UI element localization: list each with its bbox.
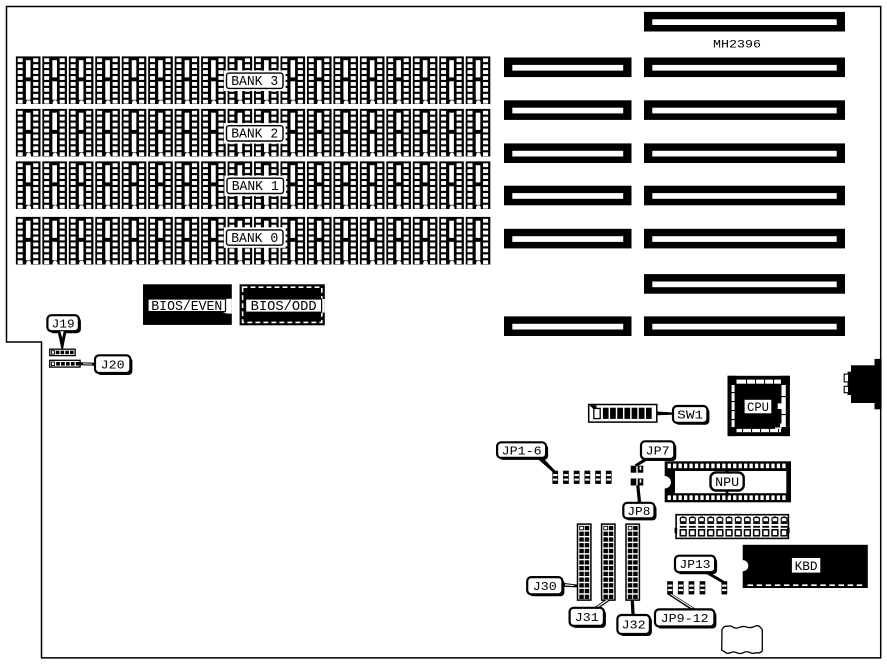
svg-text:KBD: KBD <box>795 560 818 574</box>
svg-text:SW1: SW1 <box>677 409 703 423</box>
svg-text:JP9-12: JP9-12 <box>661 612 709 626</box>
svg-text:JP8: JP8 <box>627 505 650 519</box>
svg-text:BANK 3: BANK 3 <box>231 75 278 90</box>
svg-text:BIOS/EVEN: BIOS/EVEN <box>151 300 222 315</box>
svg-text:BANK 1: BANK 1 <box>232 180 279 195</box>
svg-text:J30: J30 <box>533 580 557 594</box>
svg-text:J19: J19 <box>52 317 75 331</box>
svg-text:J32: J32 <box>622 619 646 633</box>
svg-text:BANK 0: BANK 0 <box>231 232 278 247</box>
svg-text:NPU: NPU <box>715 476 739 490</box>
svg-text:BANK 2: BANK 2 <box>231 128 278 143</box>
svg-text:JP1-6: JP1-6 <box>502 444 542 458</box>
svg-text:CPU: CPU <box>747 401 769 415</box>
svg-text:MH2396: MH2396 <box>713 40 761 52</box>
svg-text:BIOS/ODD: BIOS/ODD <box>251 300 317 315</box>
svg-text:JP7: JP7 <box>646 444 670 458</box>
svg-text:J20: J20 <box>101 358 125 372</box>
svg-text:J31: J31 <box>575 611 599 625</box>
svg-text:JP13: JP13 <box>680 558 711 572</box>
